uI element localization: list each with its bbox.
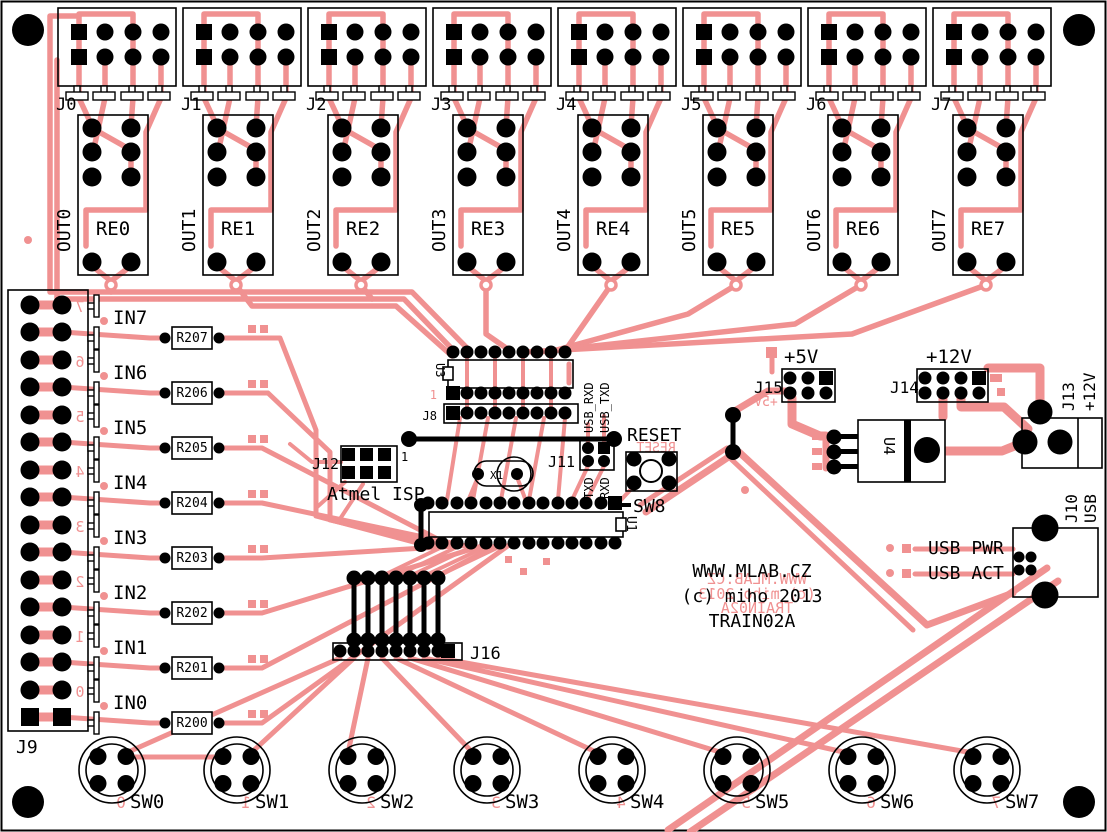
crystal-label: X1 — [490, 469, 503, 482]
switch-label: SW1 — [255, 791, 289, 813]
connector-label: J10 — [1062, 494, 1081, 523]
input-mirror-digit: 5 — [75, 408, 84, 426]
pcb-board-train02a: WWW.MLAB.CZ (c) miho 2013 TRAIN02A RESET… — [0, 0, 1107, 832]
connector-label: J4 — [556, 95, 576, 115]
rxd-label: RXD — [598, 477, 612, 499]
input-mirror-digit: 4 — [75, 463, 84, 481]
isp-label: Atmel ISP — [327, 484, 425, 505]
switch-label: SW4 — [630, 791, 664, 813]
input-label: IN5 — [113, 417, 147, 439]
input-mirror-digit: 1 — [75, 628, 84, 646]
switch-label: SW7 — [1005, 791, 1039, 813]
input-mirror-digit: 3 — [75, 518, 84, 536]
connector-label: J16 — [470, 644, 501, 664]
resistor-label: R205 — [176, 441, 207, 456]
connector-label: J5 — [681, 95, 701, 115]
plus5v-label: +5V — [784, 346, 818, 368]
output-label: OUT7 — [929, 209, 950, 252]
connector-label: J11 — [548, 453, 575, 471]
connector-label: J9 — [16, 737, 38, 758]
relay-label: RE4 — [596, 218, 630, 240]
input-mirror-digit: 0 — [75, 683, 84, 701]
board-name-label: TRAIN02A — [709, 611, 796, 632]
website-label: WWW.MLAB.CZ — [692, 561, 811, 582]
u3-pin1-marker: 1 — [430, 388, 437, 402]
input-mirror-digit: 7 — [75, 298, 84, 316]
reset-label: RESET — [627, 425, 681, 446]
resistor-label: R207 — [176, 331, 207, 346]
connector-label: J6 — [806, 95, 826, 115]
ic-label: U4 — [880, 437, 898, 455]
connector-label: J0 — [56, 95, 76, 115]
ic-label: U3 — [433, 363, 447, 377]
input-mirror-digit: 2 — [75, 573, 84, 591]
output-label: OUT6 — [804, 209, 825, 252]
usb-pwr-label: USB PWR — [928, 538, 1004, 559]
relay-label: RE7 — [971, 218, 1005, 240]
resistor-label: R203 — [176, 551, 207, 566]
resistor-label: R200 — [176, 716, 207, 731]
input-label: IN6 — [113, 362, 147, 384]
switch-label: SW3 — [505, 791, 539, 813]
mounting-pad — [914, 437, 940, 463]
output-label: OUT4 — [554, 209, 575, 252]
connector-label: J13 — [1059, 382, 1078, 411]
relay-label: RE0 — [96, 218, 130, 240]
switch-label: SW2 — [380, 791, 414, 813]
relay-label: RE1 — [221, 218, 255, 240]
plus5v-mirror-label: +5V — [754, 395, 778, 410]
mounting-hole — [1063, 14, 1095, 46]
input-label: IN0 — [113, 692, 147, 714]
input-label: IN4 — [113, 472, 147, 494]
resistor-label: R204 — [176, 496, 207, 511]
usb-txd-label: USB_TXD — [598, 382, 612, 433]
connector-label: J2 — [306, 95, 326, 115]
resistor-label: R202 — [176, 606, 207, 621]
mounting-hole — [1063, 786, 1095, 818]
output-label: OUT5 — [679, 209, 700, 252]
connector-label: J15 — [754, 378, 783, 397]
connector-label: J14 — [890, 378, 919, 397]
heatsink-tab — [904, 420, 911, 482]
relay-label: RE6 — [846, 218, 880, 240]
input-label: IN7 — [113, 307, 147, 329]
input-label: IN3 — [113, 527, 147, 549]
input-label: IN1 — [113, 637, 147, 659]
sw8-label: SW8 — [633, 496, 666, 517]
connector-label: J12 — [312, 455, 339, 473]
resistor-label: R206 — [176, 386, 207, 401]
mounting-hole — [12, 14, 44, 46]
pin1-label: 1 — [401, 450, 408, 464]
resistor-label: R201 — [176, 661, 207, 676]
connector-label: J3 — [431, 95, 451, 115]
output-label: OUT2 — [304, 209, 325, 252]
usb-label: USB — [1081, 494, 1100, 523]
switch-label: SW0 — [130, 791, 164, 813]
tick-mark — [622, 503, 631, 507]
switch-label: SW6 — [880, 791, 914, 813]
usb-rxd-label: USB_RXD — [582, 382, 596, 433]
plus12v-label: +12V — [926, 346, 972, 368]
button-actuator — [640, 460, 662, 482]
input-label: IN2 — [113, 582, 147, 604]
output-label: OUT3 — [429, 209, 450, 252]
voltage-label: +12V — [1080, 372, 1099, 411]
switch-label: SW5 — [755, 791, 789, 813]
connector-label: J8 — [423, 409, 437, 423]
ic-label: U1 — [623, 516, 638, 532]
txd-label: TXD — [582, 477, 596, 499]
input-mirror-digit: 6 — [75, 353, 84, 371]
usb-act-label: USB ACT — [928, 563, 1004, 584]
mounting-hole — [12, 786, 44, 818]
relay-label: RE3 — [471, 218, 505, 240]
relay-label: RE2 — [346, 218, 380, 240]
relay-label: RE5 — [721, 218, 755, 240]
connector-label: J1 — [181, 95, 201, 115]
copyright-label: (c) miho 2013 — [682, 586, 823, 607]
output-label: OUT1 — [179, 209, 200, 252]
output-label: OUT0 — [54, 209, 75, 252]
connector-label: J7 — [931, 95, 951, 115]
